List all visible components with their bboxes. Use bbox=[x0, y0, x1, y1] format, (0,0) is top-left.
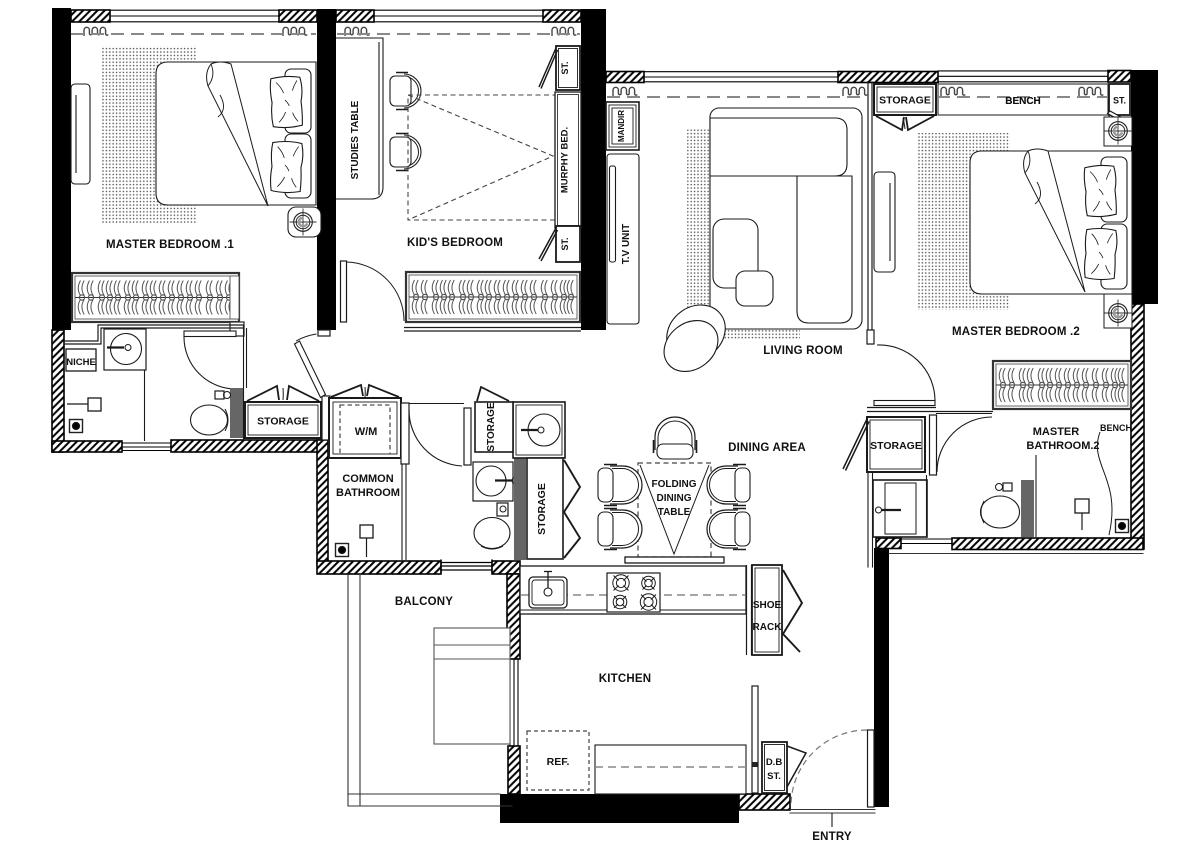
svg-text:STORAGE: STORAGE bbox=[536, 483, 548, 535]
svg-text:ST.: ST. bbox=[560, 237, 570, 250]
svg-text:DINING: DINING bbox=[657, 493, 692, 504]
svg-text:STORAGE: STORAGE bbox=[257, 416, 309, 428]
svg-text:T.V UNIT: T.V UNIT bbox=[621, 224, 632, 265]
svg-text:REF.: REF. bbox=[547, 756, 570, 768]
svg-text:STUDIES TABLE: STUDIES TABLE bbox=[350, 100, 361, 179]
svg-text:SHOE: SHOE bbox=[753, 600, 782, 611]
svg-text:ST.: ST. bbox=[767, 771, 781, 782]
svg-text:KITCHEN: KITCHEN bbox=[599, 673, 652, 685]
svg-text:ST.: ST. bbox=[560, 61, 570, 74]
svg-text:ST.: ST. bbox=[1113, 96, 1126, 106]
svg-text:RACK: RACK bbox=[753, 622, 783, 633]
svg-text:STORAGE: STORAGE bbox=[870, 440, 922, 452]
svg-text:COMMON: COMMON bbox=[342, 473, 393, 485]
svg-text:DINING AREA: DINING AREA bbox=[728, 442, 806, 454]
svg-text:STORAGE: STORAGE bbox=[879, 95, 931, 107]
svg-text:W/M: W/M bbox=[355, 426, 378, 438]
svg-text:NICHE: NICHE bbox=[66, 357, 96, 368]
svg-text:BALCONY: BALCONY bbox=[395, 596, 453, 608]
svg-text:KID'S BEDROOM: KID'S BEDROOM bbox=[407, 237, 503, 249]
svg-text:D.B: D.B bbox=[766, 757, 783, 768]
svg-text:FOLDING: FOLDING bbox=[652, 479, 697, 490]
svg-text:BENCH: BENCH bbox=[1005, 96, 1041, 107]
svg-text:STORAGE: STORAGE bbox=[486, 402, 497, 452]
svg-text:MASTER BEDROOM .1: MASTER BEDROOM .1 bbox=[106, 239, 234, 251]
svg-text:BATHROOM.2: BATHROOM.2 bbox=[1026, 440, 1099, 452]
svg-text:MURPHY BED.: MURPHY BED. bbox=[560, 127, 571, 193]
svg-text:LIVING ROOM: LIVING ROOM bbox=[763, 345, 843, 357]
svg-text:BENCH: BENCH bbox=[1100, 423, 1132, 433]
svg-text:MASTER: MASTER bbox=[1033, 426, 1080, 438]
svg-text:TABLE: TABLE bbox=[658, 507, 691, 518]
svg-text:MANDIR: MANDIR bbox=[617, 110, 626, 142]
svg-text:MASTER BEDROOM .2: MASTER BEDROOM .2 bbox=[952, 326, 1080, 338]
svg-text:BATHROOM: BATHROOM bbox=[336, 487, 400, 499]
svg-text:ENTRY: ENTRY bbox=[812, 831, 852, 843]
